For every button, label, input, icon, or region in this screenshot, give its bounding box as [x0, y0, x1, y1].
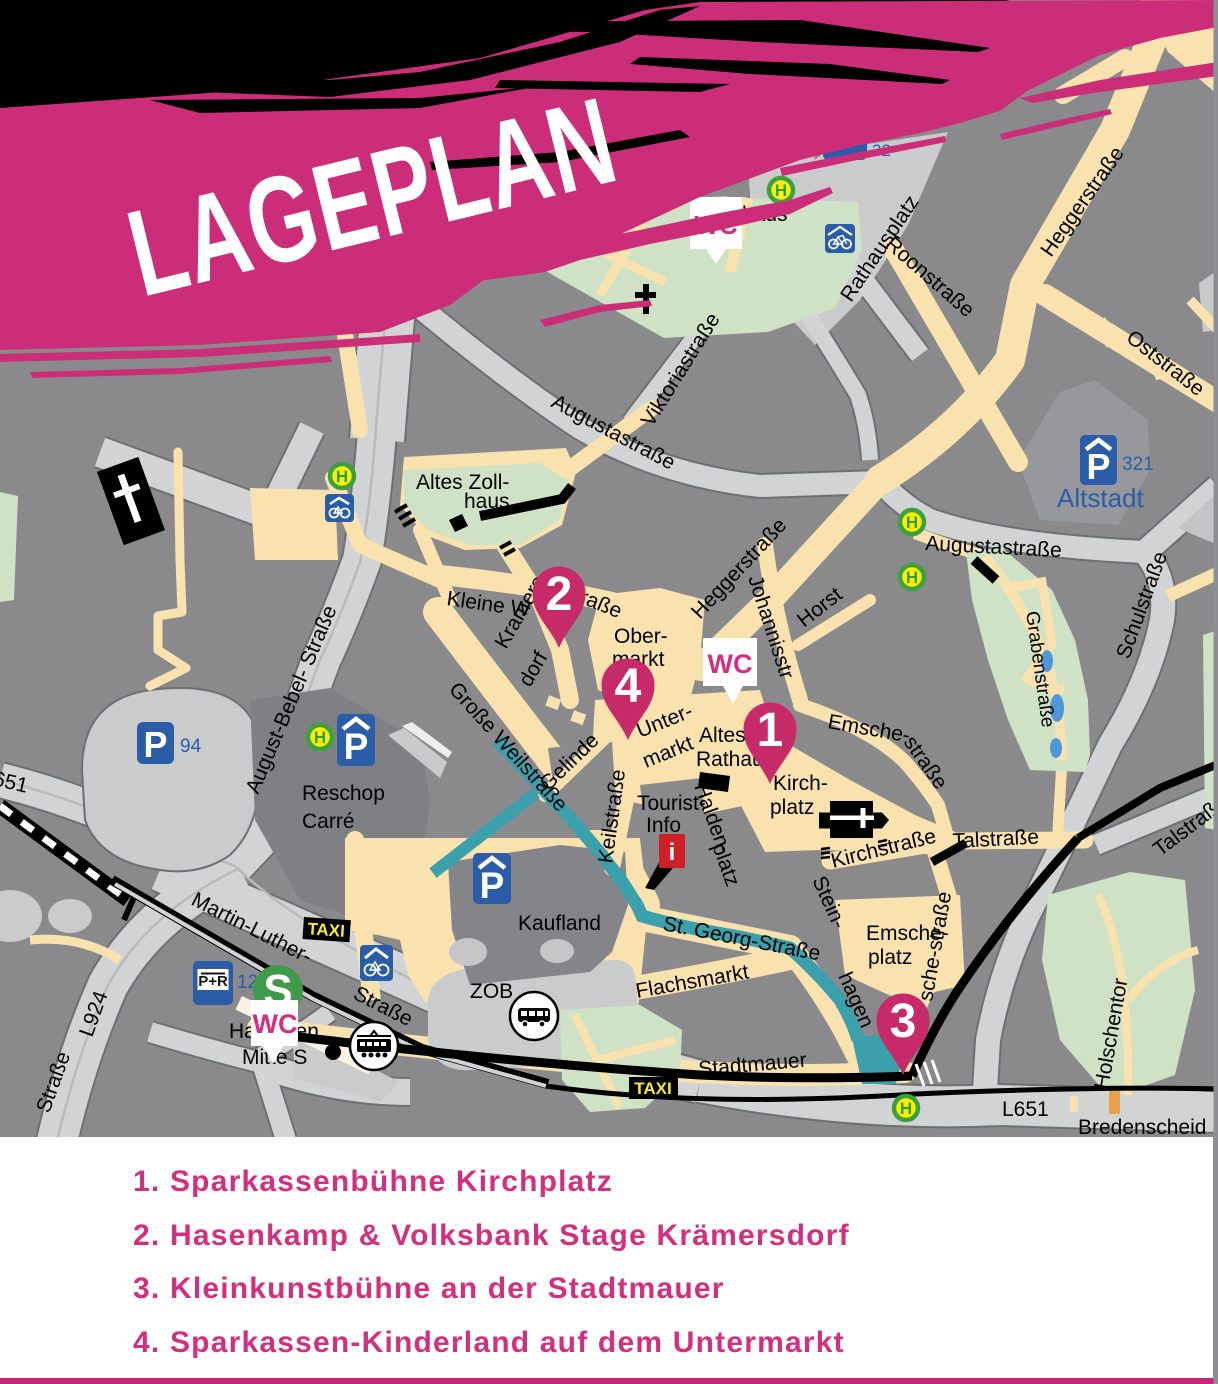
svg-text:H: H	[900, 1099, 912, 1118]
svg-text:3. Kleinkunstbühne an der Stad: 3. Kleinkunstbühne an der Stadtmauer	[133, 1272, 725, 1305]
svg-text:Talstraße: Talstraße	[952, 826, 1039, 853]
svg-text:H: H	[314, 728, 326, 747]
svg-text:Altes: Altes	[699, 724, 746, 747]
svg-text:4. Sparkassen-Kinderland auf d: 4. Sparkassen-Kinderland auf dem Unterma…	[133, 1326, 845, 1359]
svg-text:3: 3	[890, 995, 917, 1048]
svg-text:P: P	[344, 726, 369, 767]
svg-text:TAXI: TAXI	[307, 919, 346, 941]
svg-text:1. Sparkassenbühne Kirchplatz: 1. Sparkassenbühne Kirchplatz	[133, 1165, 613, 1198]
svg-text:L651: L651	[1002, 1098, 1049, 1121]
svg-text:WC: WC	[253, 1009, 298, 1039]
svg-text:1: 1	[757, 704, 784, 757]
svg-text:P: P	[480, 865, 505, 906]
svg-text:Kaufland: Kaufland	[518, 912, 601, 935]
svg-text:P: P	[143, 724, 167, 765]
svg-text:Altstadt: Altstadt	[1057, 483, 1144, 513]
svg-text:Carré: Carré	[302, 810, 355, 833]
svg-text:Reschop: Reschop	[302, 782, 385, 805]
svg-text:i: i	[669, 839, 676, 866]
svg-text:TAXI: TAXI	[634, 1079, 671, 1098]
svg-text:WC: WC	[708, 649, 753, 679]
svg-text:4: 4	[615, 660, 642, 713]
svg-text:Kirch-: Kirch-	[773, 772, 828, 795]
svg-text:ZOB: ZOB	[470, 980, 513, 1003]
svg-text:Info: Info	[646, 814, 681, 837]
svg-text:2. Hasenkamp & Volksbank Stage: 2. Hasenkamp & Volksbank Stage Krämersdo…	[133, 1219, 850, 1252]
svg-text:94: 94	[180, 736, 202, 757]
svg-text:Ober-: Ober-	[614, 625, 668, 648]
svg-text:321: 321	[1122, 454, 1154, 475]
svg-text:H: H	[906, 568, 918, 587]
svg-text:platz: platz	[868, 946, 912, 969]
svg-text:H: H	[775, 181, 787, 200]
svg-text:P+R: P+R	[198, 973, 228, 990]
svg-text:Bredenscheid: Bredenscheid	[1078, 1116, 1206, 1139]
svg-text:platz: platz	[770, 796, 814, 819]
svg-text:haus: haus	[464, 490, 510, 513]
svg-text:2: 2	[546, 568, 573, 621]
svg-text:P: P	[1086, 446, 1110, 487]
svg-text:H: H	[906, 513, 918, 532]
svg-text:H: H	[336, 467, 348, 486]
